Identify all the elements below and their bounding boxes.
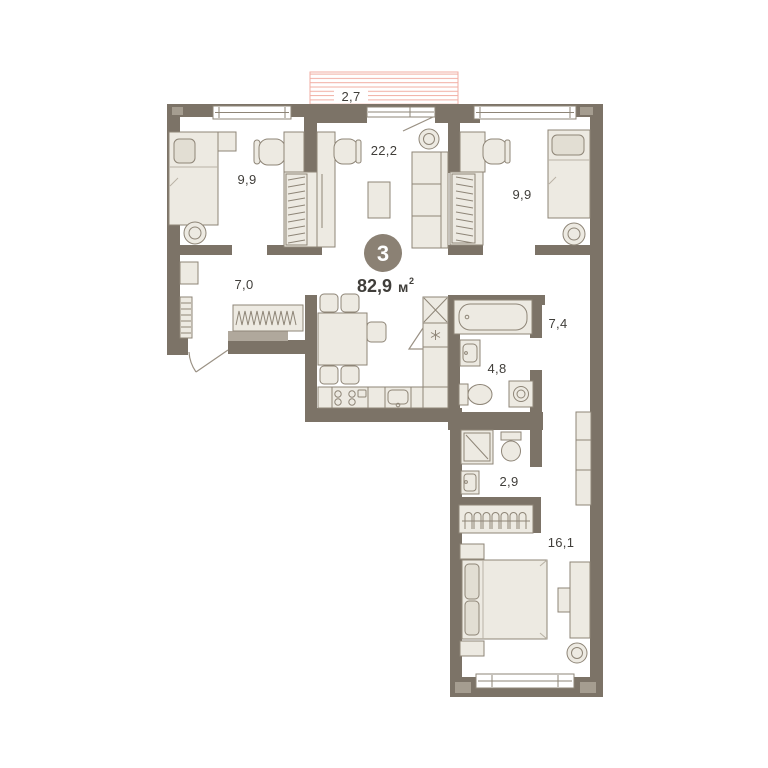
dresser bbox=[558, 562, 590, 638]
dining-set bbox=[318, 294, 386, 384]
chair bbox=[341, 294, 359, 312]
tall-cabinet bbox=[423, 347, 448, 387]
floor-plan: 2,7 22,2 9,9 9,9 7,0 7,4 4,8 2,9 16,1 3 … bbox=[0, 0, 768, 768]
wall-kitchen-left bbox=[305, 295, 317, 422]
bath-sink bbox=[460, 340, 480, 366]
shoe-wardrobe bbox=[228, 305, 303, 341]
desk-chair bbox=[483, 139, 510, 164]
wall-partition-left bbox=[304, 117, 317, 173]
plant bbox=[184, 222, 206, 244]
balcony-area-label: 2,7 bbox=[342, 89, 361, 104]
wall-hall-bottom bbox=[228, 340, 317, 354]
cabinet bbox=[180, 262, 198, 284]
nightstand bbox=[218, 132, 236, 151]
bed-double bbox=[462, 560, 547, 639]
living-room-area-label: 22,2 bbox=[371, 143, 398, 158]
sofa bbox=[412, 152, 448, 248]
washing-machine bbox=[509, 381, 533, 407]
master-bedroom-area-label: 16,1 bbox=[548, 535, 575, 550]
hallway-area-label: 7,0 bbox=[235, 277, 254, 292]
bathtub bbox=[454, 300, 532, 334]
hallway-furniture bbox=[180, 262, 303, 341]
wc-sink bbox=[461, 471, 479, 494]
wall-accent bbox=[172, 107, 183, 115]
coffee-table bbox=[368, 182, 390, 218]
kitchen-counter bbox=[318, 387, 423, 408]
desk-chair bbox=[254, 139, 285, 165]
dining-table bbox=[318, 313, 367, 365]
toilet bbox=[459, 384, 492, 405]
plant bbox=[563, 223, 585, 245]
nightstand bbox=[460, 641, 484, 656]
plant bbox=[419, 129, 439, 149]
wardrobe bbox=[284, 172, 317, 247]
wall-partition-right bbox=[448, 117, 460, 173]
cabinet-door-swing bbox=[409, 328, 423, 349]
balcony bbox=[310, 72, 458, 106]
toilet bbox=[501, 432, 521, 461]
total-area-unit: м bbox=[398, 279, 408, 295]
window-bedroom-right bbox=[474, 106, 576, 119]
nightstand bbox=[460, 544, 484, 559]
wc-area-label: 2,9 bbox=[500, 474, 519, 489]
room-count-number: 3 bbox=[377, 241, 389, 266]
room-count-badge: 3 bbox=[364, 234, 402, 272]
wall-wc-right bbox=[530, 430, 542, 467]
desk bbox=[460, 132, 485, 172]
wall-accent bbox=[580, 682, 596, 693]
tv bbox=[558, 588, 570, 612]
corridor-area-label: 7,4 bbox=[549, 316, 568, 331]
wall-bedroom-right-bottom-a bbox=[448, 245, 483, 255]
bed-single bbox=[548, 130, 590, 218]
bedroom-left-area-label: 9,9 bbox=[238, 172, 257, 187]
wall-accent bbox=[455, 682, 471, 693]
bedroom-left-furniture bbox=[169, 132, 317, 247]
wall-bedroom-right-bottom-b bbox=[535, 245, 603, 255]
wall-bedroom-left-bottom-a bbox=[167, 245, 232, 255]
total-area-value: 82,9 bbox=[357, 276, 392, 296]
wall-kitchen-bottom bbox=[305, 408, 462, 422]
shower bbox=[461, 430, 493, 464]
pillow bbox=[552, 135, 584, 155]
window-master-bedroom bbox=[476, 674, 574, 688]
pillow bbox=[465, 564, 479, 599]
desk-chair bbox=[334, 139, 361, 164]
corridor-wardrobe bbox=[576, 412, 591, 505]
chair bbox=[320, 294, 338, 312]
tv-unit bbox=[317, 132, 335, 247]
window-bedroom-left bbox=[213, 106, 291, 119]
chair bbox=[320, 366, 338, 384]
radiator bbox=[180, 297, 192, 338]
bathroom-furniture bbox=[454, 300, 533, 407]
counter-end bbox=[423, 387, 448, 408]
desk bbox=[284, 132, 304, 172]
wall-accent bbox=[580, 107, 593, 115]
wall-bath-bottom bbox=[448, 412, 543, 430]
floor-plan-page: 2,7 22,2 9,9 9,9 7,0 7,4 4,8 2,9 16,1 3 … bbox=[0, 0, 768, 768]
hanger-wardrobe bbox=[459, 505, 533, 533]
wall-right bbox=[590, 104, 603, 697]
bed-single bbox=[169, 132, 218, 225]
kitchen-furniture bbox=[318, 294, 448, 408]
balcony-hatch bbox=[310, 72, 458, 106]
plant bbox=[567, 643, 587, 663]
bathroom-area-label: 4,8 bbox=[488, 361, 507, 376]
chair bbox=[341, 366, 359, 384]
balcony-glazing bbox=[367, 107, 435, 131]
pillow bbox=[465, 601, 479, 635]
entrance-door bbox=[189, 350, 228, 372]
bedroom-right-area-label: 9,9 bbox=[513, 187, 532, 202]
chair bbox=[367, 322, 386, 342]
wardrobe bbox=[450, 172, 483, 245]
total-area-label: 82,9 м 2 bbox=[357, 276, 414, 296]
pillow bbox=[174, 139, 195, 163]
total-area-sup: 2 bbox=[409, 276, 414, 286]
